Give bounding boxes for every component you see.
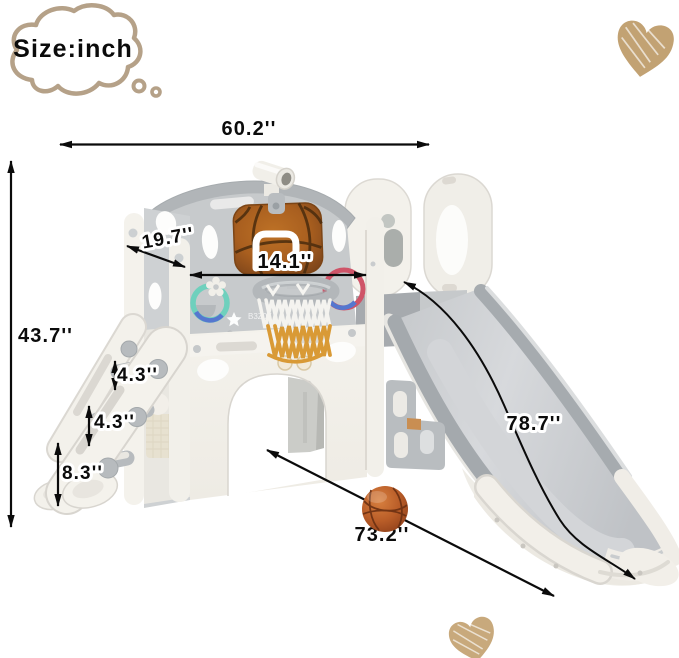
svg-text:Size:inch: Size:inch — [13, 35, 133, 63]
svg-text:8.3'': 8.3'' — [62, 463, 103, 484]
svg-text:14.1'': 14.1'' — [257, 251, 312, 273]
svg-text:4.3'': 4.3'' — [94, 412, 135, 433]
svg-text:4.3'': 4.3'' — [117, 365, 158, 386]
svg-text:60.2'': 60.2'' — [221, 118, 276, 140]
svg-text:78.7'': 78.7'' — [506, 413, 561, 435]
svg-text:43.7'': 43.7'' — [18, 325, 73, 347]
